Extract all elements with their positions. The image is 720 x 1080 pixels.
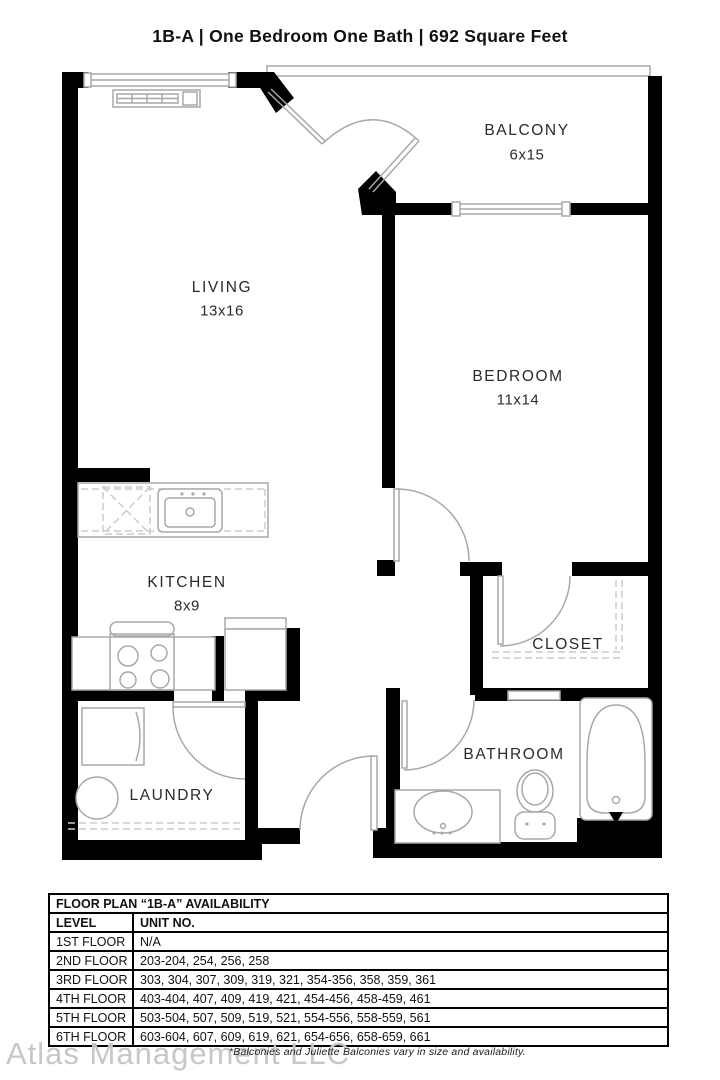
table-row: 1ST FLOOR N/A bbox=[49, 932, 668, 951]
kitchen-label: KITCHEN bbox=[147, 574, 226, 592]
balcony-label: BALCONY bbox=[484, 122, 569, 140]
closet-label: CLOSET bbox=[532, 636, 604, 654]
units-cell: 503-504, 507, 509, 519, 521, 554-556, 55… bbox=[133, 1008, 668, 1027]
table-row: 5TH FLOOR 503-504, 507, 509, 519, 521, 5… bbox=[49, 1008, 668, 1027]
vanity-sink bbox=[395, 790, 500, 843]
table-row: 2ND FLOOR 203-204, 254, 256, 258 bbox=[49, 951, 668, 970]
laundry-shelf-dashes bbox=[68, 823, 243, 829]
kitchen-dims: 8x9 bbox=[174, 598, 200, 615]
balcony-outline bbox=[267, 66, 650, 76]
laundry-door bbox=[173, 702, 245, 779]
availability-header-row: LEVEL UNIT NO. bbox=[49, 913, 668, 932]
bedroom-dims: 11x14 bbox=[497, 392, 540, 409]
bathroom-label: BATHROOM bbox=[463, 746, 564, 764]
living-dims: 13x16 bbox=[200, 303, 244, 320]
level-cell: 5TH FLOOR bbox=[49, 1008, 133, 1027]
level-cell: 1ST FLOOR bbox=[49, 932, 133, 951]
toilet bbox=[515, 770, 555, 839]
living-label: LIVING bbox=[192, 279, 252, 297]
col-level: LEVEL bbox=[49, 913, 133, 932]
balcony-disclaimer: *Balconies and Juliette Balconies vary i… bbox=[229, 1046, 526, 1058]
units-cell: 303, 304, 307, 309, 319, 321, 354-356, 3… bbox=[133, 970, 668, 989]
balcony-dims: 6x15 bbox=[510, 147, 545, 164]
units-cell: 403-404, 407, 409, 419, 421, 454-456, 45… bbox=[133, 989, 668, 1008]
washer bbox=[82, 708, 144, 765]
bedroom-door bbox=[394, 489, 469, 561]
baseboard-heater bbox=[113, 90, 200, 107]
kitchen-sink bbox=[158, 489, 222, 532]
laundry-label: LAUNDRY bbox=[130, 787, 215, 805]
living-window bbox=[84, 73, 236, 87]
availability-title-row: FLOOR PLAN “1B-A” AVAILABILITY bbox=[49, 894, 668, 913]
stove bbox=[72, 622, 215, 690]
availability-title: FLOOR PLAN “1B-A” AVAILABILITY bbox=[49, 894, 668, 913]
bathroom-cabinet bbox=[508, 691, 560, 700]
bathtub bbox=[580, 698, 652, 824]
level-cell: 4TH FLOOR bbox=[49, 989, 133, 1008]
bedroom-window bbox=[452, 202, 570, 216]
entry-door bbox=[300, 756, 377, 830]
floor-plan-sheet: 1B-A | One Bedroom One Bath | 692 Square… bbox=[0, 0, 720, 1080]
bedroom-label: BEDROOM bbox=[472, 368, 563, 386]
level-cell: 3RD FLOOR bbox=[49, 970, 133, 989]
table-row: 4TH FLOOR 403-404, 407, 409, 419, 421, 4… bbox=[49, 989, 668, 1008]
units-cell: N/A bbox=[133, 932, 668, 951]
col-unit-no: UNIT NO. bbox=[133, 913, 668, 932]
balcony-door bbox=[268, 89, 419, 192]
water-heater bbox=[76, 777, 118, 819]
units-cell: 203-204, 254, 256, 258 bbox=[133, 951, 668, 970]
walls bbox=[62, 72, 662, 860]
refrigerator bbox=[225, 618, 286, 690]
level-cell: 2ND FLOOR bbox=[49, 951, 133, 970]
availability-table: FLOOR PLAN “1B-A” AVAILABILITY LEVEL UNI… bbox=[48, 893, 669, 1047]
table-row: 3RD FLOOR 303, 304, 307, 309, 319, 321, … bbox=[49, 970, 668, 989]
floor-plan-drawing: .w{fill:#000;} .fx{fill:none;stroke:#a8a… bbox=[0, 0, 720, 880]
